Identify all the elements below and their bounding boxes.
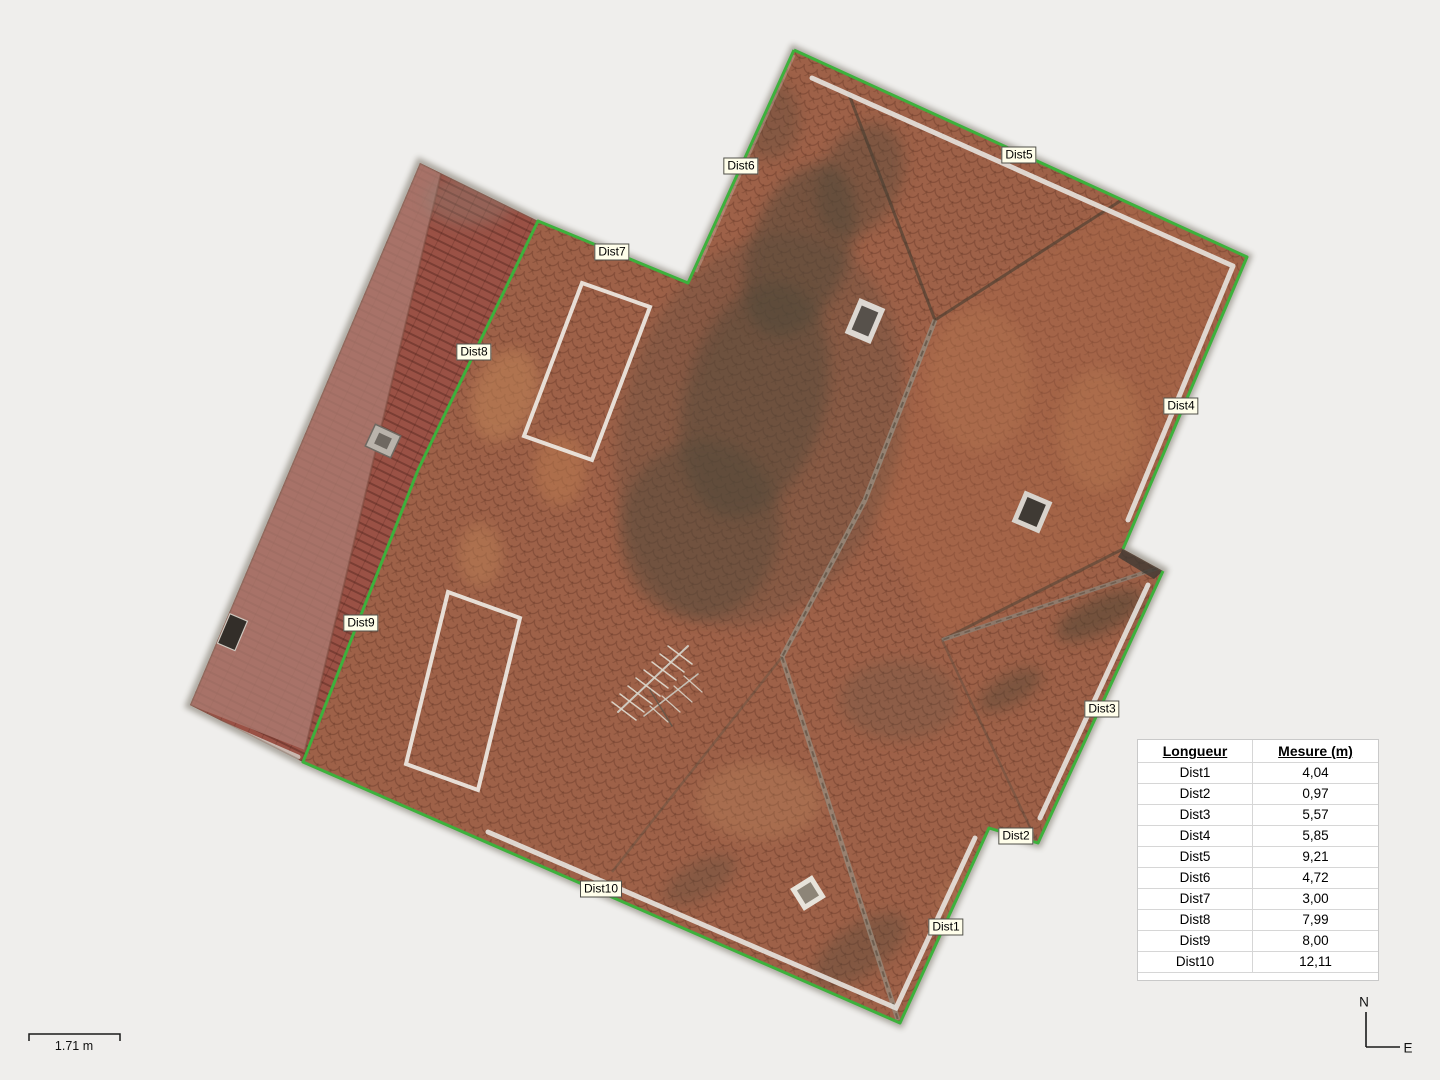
measure-row[interactable]: Dist8 7,99	[1138, 909, 1378, 930]
measure-row[interactable]: Dist9 8,00	[1138, 930, 1378, 951]
scale-bar-label: 1.71 m	[55, 1039, 93, 1053]
compass-axes	[1366, 1012, 1400, 1047]
measure-name: Dist1	[1138, 763, 1253, 783]
header-longueur: Longueur	[1138, 740, 1253, 762]
measure-value: 9,21	[1253, 847, 1378, 867]
measure-row[interactable]: Dist2 0,97	[1138, 783, 1378, 804]
measure-name: Dist6	[1138, 868, 1253, 888]
distance-label[interactable]: Dist2	[998, 828, 1033, 845]
measure-row[interactable]: Dist10 12,11	[1138, 951, 1378, 972]
distance-label[interactable]: Dist5	[1001, 147, 1036, 164]
distance-label[interactable]: Dist8	[456, 344, 491, 361]
measure-table-header: Longueur Mesure (m)	[1138, 740, 1378, 762]
measure-table-body: Dist1 4,04 Dist2 0,97 Dist3 5,57 Dist4 5…	[1138, 762, 1378, 972]
measure-value: 3,00	[1253, 889, 1378, 909]
measure-row[interactable]: Dist1 4,04	[1138, 762, 1378, 783]
distance-label[interactable]: Dist7	[594, 244, 629, 261]
measure-row[interactable]: Dist7 3,00	[1138, 888, 1378, 909]
measure-value: 5,57	[1253, 805, 1378, 825]
distance-label[interactable]: Dist3	[1084, 701, 1119, 718]
distance-label[interactable]: Dist1	[928, 919, 963, 936]
distance-label[interactable]: Dist4	[1163, 398, 1198, 415]
measure-row[interactable]: Dist3 5,57	[1138, 804, 1378, 825]
measure-value: 5,85	[1253, 826, 1378, 846]
measure-row[interactable]: Dist6 4,72	[1138, 867, 1378, 888]
measure-name: Dist7	[1138, 889, 1253, 909]
measure-name: Dist3	[1138, 805, 1253, 825]
map-viewport[interactable]: Dist1Dist2Dist3Dist4Dist5Dist6Dist7Dist8…	[0, 0, 1440, 1080]
measure-name: Dist5	[1138, 847, 1253, 867]
compass-east-label: E	[1403, 1041, 1412, 1056]
measure-value: 8,00	[1253, 931, 1378, 951]
distance-label[interactable]: Dist6	[723, 158, 758, 175]
measure-name: Dist10	[1138, 952, 1253, 972]
compass-north-label: N	[1359, 995, 1369, 1010]
table-footer-stub	[1138, 972, 1378, 980]
measure-name: Dist2	[1138, 784, 1253, 804]
distance-label[interactable]: Dist9	[343, 615, 378, 632]
measure-table: Longueur Mesure (m) Dist1 4,04 Dist2 0,9…	[1137, 739, 1379, 981]
header-mesure: Mesure (m)	[1253, 740, 1378, 762]
measure-name: Dist8	[1138, 910, 1253, 930]
measure-row[interactable]: Dist5 9,21	[1138, 846, 1378, 867]
distance-label[interactable]: Dist10	[580, 881, 622, 898]
measure-name: Dist4	[1138, 826, 1253, 846]
measure-value: 7,99	[1253, 910, 1378, 930]
measure-name: Dist9	[1138, 931, 1253, 951]
measure-value: 4,72	[1253, 868, 1378, 888]
measure-value: 12,11	[1253, 952, 1378, 972]
measure-value: 4,04	[1253, 763, 1378, 783]
measure-row[interactable]: Dist4 5,85	[1138, 825, 1378, 846]
measure-value: 0,97	[1253, 784, 1378, 804]
